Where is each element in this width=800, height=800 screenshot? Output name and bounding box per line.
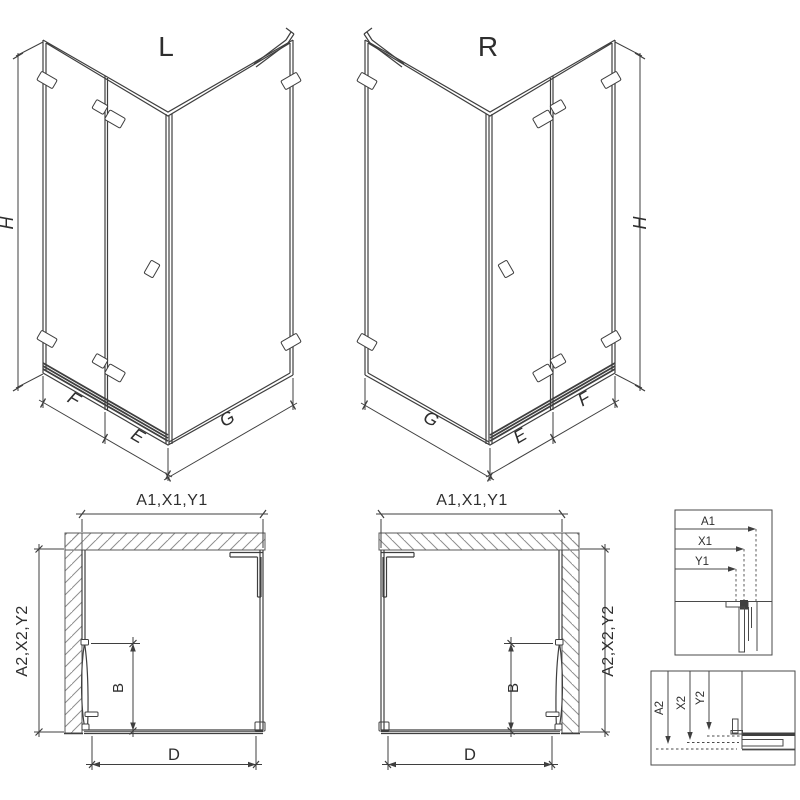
detail-label-x2: X2	[676, 696, 688, 710]
detail-label-x1: X1	[698, 536, 712, 548]
iso-left-dim-g: G	[216, 407, 238, 431]
drawing-canvas: L H F E G R H G E F A1,X1,Y1 A2,X2,Y2 B …	[0, 0, 800, 800]
detail-label-a1: A1	[701, 516, 715, 528]
arrow-x2	[687, 732, 692, 740]
iso-view-right-geometry	[357, 28, 645, 482]
plan-view-right-geometry	[376, 510, 610, 770]
plan-right-side-dims: A2,X2,Y2	[600, 605, 617, 677]
iso-right-title: R	[478, 31, 498, 62]
iso-right-dim-e: E	[510, 424, 531, 448]
detail-inset-horizontal	[675, 510, 772, 655]
iso-left-dim-f: F	[64, 387, 84, 410]
shower-enclosure-technical-drawing: L H F E G R H G E F A1,X1,Y1 A2,X2,Y2 B …	[0, 0, 800, 800]
arrow-y1	[728, 566, 736, 571]
detail-label-a2: A2	[654, 701, 666, 715]
arrow-a2	[665, 736, 670, 744]
plan-right-dim-d: D	[464, 746, 476, 764]
arrow-x1	[736, 546, 744, 551]
plan-left-dim-d: D	[168, 746, 180, 764]
iso-right-dim-f: F	[574, 387, 594, 410]
iso-view-left-geometry	[13, 28, 301, 482]
iso-right-dim-h: H	[630, 216, 650, 230]
plan-right-dim-b: B	[505, 683, 522, 693]
plan-left-side-dims: A2,X2,Y2	[14, 605, 31, 677]
iso-right-dim-g: G	[420, 407, 442, 431]
arrow-a1	[748, 526, 756, 531]
detail-inset-vertical	[651, 671, 795, 765]
iso-left-dim-e: E	[128, 424, 149, 448]
plan-left-dim-b: B	[110, 683, 127, 693]
plan-right-top-dims: A1,X1,Y1	[436, 492, 508, 509]
detail-label-y2: Y2	[695, 691, 707, 705]
plan-left-top-dims: A1,X1,Y1	[136, 492, 208, 509]
detail-label-y1: Y1	[695, 556, 709, 568]
iso-left-title: L	[158, 31, 174, 62]
arrow-y2	[706, 722, 711, 730]
plan-view-left-geometry	[34, 510, 268, 770]
iso-left-dim-h: H	[0, 216, 17, 230]
